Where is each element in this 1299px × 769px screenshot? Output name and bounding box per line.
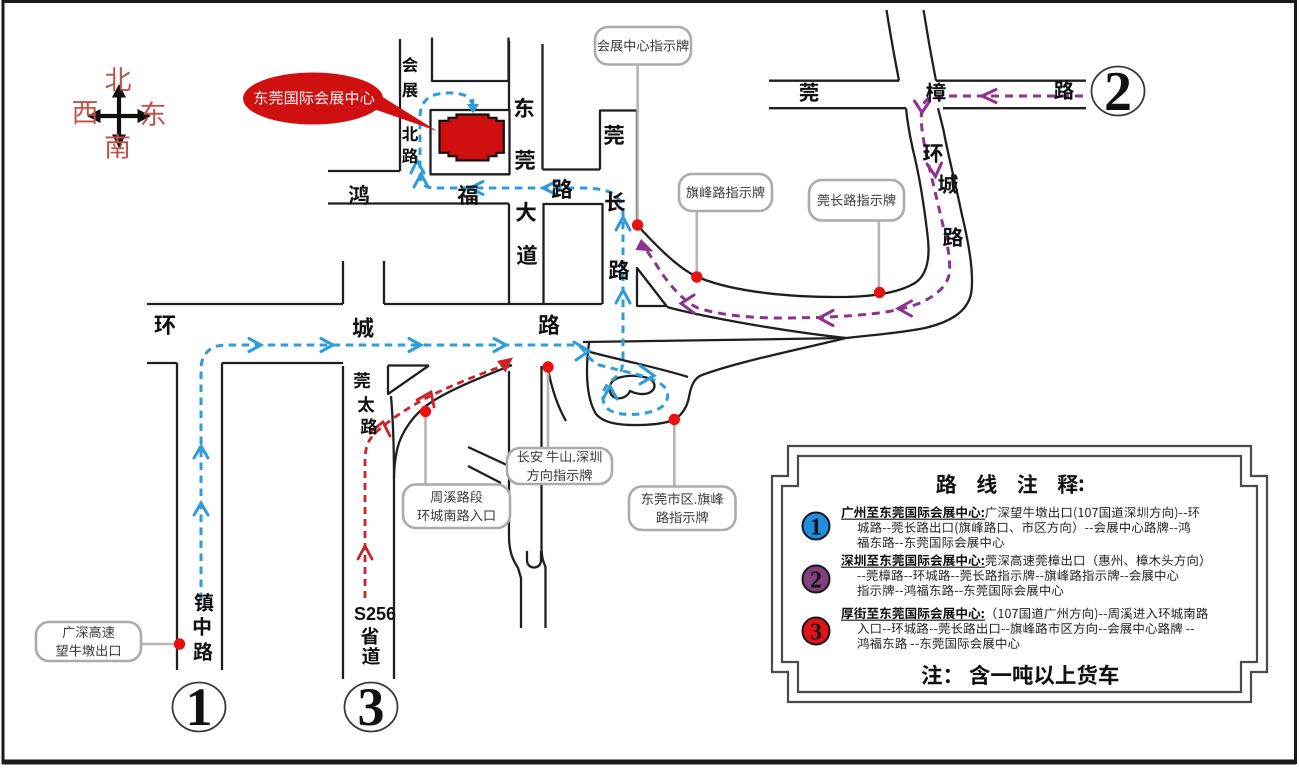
svg-text:1: 1 (186, 677, 213, 737)
svg-text:2: 2 (1104, 61, 1132, 123)
svg-text:S256: S256 (354, 604, 396, 624)
svg-text:3: 3 (810, 620, 822, 646)
svg-text:1: 1 (810, 515, 822, 541)
svg-text:2: 2 (810, 568, 822, 594)
svg-text:3: 3 (358, 677, 385, 737)
